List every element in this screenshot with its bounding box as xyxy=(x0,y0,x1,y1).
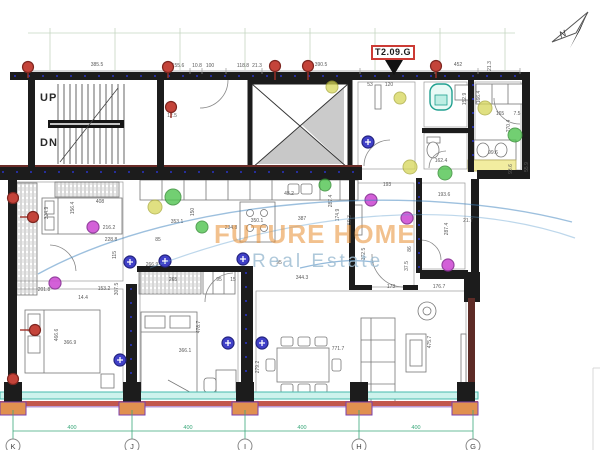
dim-label: 366.1 xyxy=(179,348,192,354)
dim-label: 55.9 xyxy=(524,162,530,172)
dim-label: 99.6 xyxy=(488,150,498,156)
dim-label: 166.4 xyxy=(476,91,482,104)
floor-plan-canvas: 400 400 400 400 K J I H G UP DN 385.5 15… xyxy=(0,0,600,450)
dim-label: 265 xyxy=(169,277,178,283)
chair xyxy=(298,337,310,346)
dim-label: 385.5 xyxy=(91,62,104,68)
dim-label: 95 xyxy=(216,277,222,283)
dim-label: 287.4 xyxy=(444,223,450,236)
bed xyxy=(141,312,197,396)
dim-label: 156.4 xyxy=(70,202,76,215)
grid-span: 400 xyxy=(297,425,306,431)
dining-table xyxy=(266,337,341,393)
dim-label: 478.7 xyxy=(196,321,202,334)
grid-bubble-K: K xyxy=(10,442,15,450)
water-heater xyxy=(430,84,452,110)
grid-bubble-J: J xyxy=(130,442,134,450)
facade-window-band xyxy=(0,382,478,415)
elevator-shaft xyxy=(250,82,350,170)
dim-label: 7.5 xyxy=(514,111,521,117)
dim-label: 53 xyxy=(367,82,373,88)
dim-label: 21.3 xyxy=(252,63,262,69)
chair xyxy=(204,378,216,392)
dim-label: 15 xyxy=(230,277,236,283)
dim-label: 307.5 xyxy=(114,283,120,296)
dim-label: 408 xyxy=(96,199,105,205)
dim-label: 216.2 xyxy=(103,225,116,231)
hall-bench xyxy=(375,85,381,109)
stairs-up-label: UP xyxy=(40,92,57,104)
grid-bubble-G: G xyxy=(470,442,476,450)
dim-label: 14.4 xyxy=(78,295,88,301)
chair xyxy=(332,359,341,371)
dim-label: 201.8 xyxy=(38,287,51,293)
dim-label: 118.8 xyxy=(237,63,249,69)
tv-console xyxy=(461,334,466,390)
grid-span: 400 xyxy=(183,425,192,431)
dim-label: 452 xyxy=(454,62,463,68)
dim-label: 48.2 xyxy=(284,191,294,197)
bed xyxy=(25,310,114,388)
dim-label: 162.4 xyxy=(435,158,448,164)
dim-label: 771.7 xyxy=(332,346,345,352)
dim-label: 475.7 xyxy=(427,336,433,349)
nightstand xyxy=(101,374,114,388)
dim-label: 366.9 xyxy=(64,340,77,346)
dim-label: 21.3 xyxy=(487,61,493,71)
wardrobe xyxy=(55,182,119,197)
dim-label: 93.6 xyxy=(508,164,514,174)
dim-label: 152.9 xyxy=(462,93,468,106)
dim-label: 100 xyxy=(206,63,215,69)
dim-label: 150 xyxy=(190,208,196,217)
dim-label: 153.2 xyxy=(98,286,111,292)
staircase xyxy=(48,84,124,164)
toilet xyxy=(427,137,440,158)
grid-span: 400 xyxy=(411,425,420,431)
dim-label: 193.6 xyxy=(438,192,451,198)
dim-label: 173 xyxy=(387,284,396,290)
dim-label: 85 xyxy=(155,237,161,243)
sink xyxy=(301,184,312,194)
watermark-brand: FUTURE HOME xyxy=(214,219,416,250)
dim-label: 21.7 xyxy=(463,218,473,224)
grid-bubble-H: H xyxy=(356,442,361,450)
dim-label: 466.6 xyxy=(54,329,60,342)
dim-label: 344.3 xyxy=(296,275,309,281)
dim-label: 193 xyxy=(383,182,392,188)
dim-label: 176.7 xyxy=(433,284,446,290)
dim-label: 279.2 xyxy=(255,361,261,374)
dim-label: 390.5 xyxy=(315,62,328,68)
structural-grid: 400 400 400 400 K J I H G xyxy=(6,410,480,450)
grid-span: 400 xyxy=(67,425,76,431)
watermark-tagline: Real Estate xyxy=(252,251,383,273)
dim-label: 165 xyxy=(496,111,505,117)
dim-label: 324.9 xyxy=(44,207,50,220)
chair xyxy=(281,337,293,346)
grid-bubble-I: I xyxy=(244,442,246,450)
dim-label: 37.5 xyxy=(404,261,410,271)
unit-tag: T2.09.G xyxy=(371,45,415,60)
dim-label: 10.8 xyxy=(192,63,202,69)
dim-label: 120 xyxy=(385,82,394,88)
chair xyxy=(315,337,327,346)
stairs-down-label: DN xyxy=(40,137,58,149)
dim-label: 12.5 xyxy=(167,113,177,119)
dim-label: 115 xyxy=(112,251,118,259)
chair xyxy=(266,359,275,371)
north-arrow-icon: N xyxy=(552,12,588,48)
